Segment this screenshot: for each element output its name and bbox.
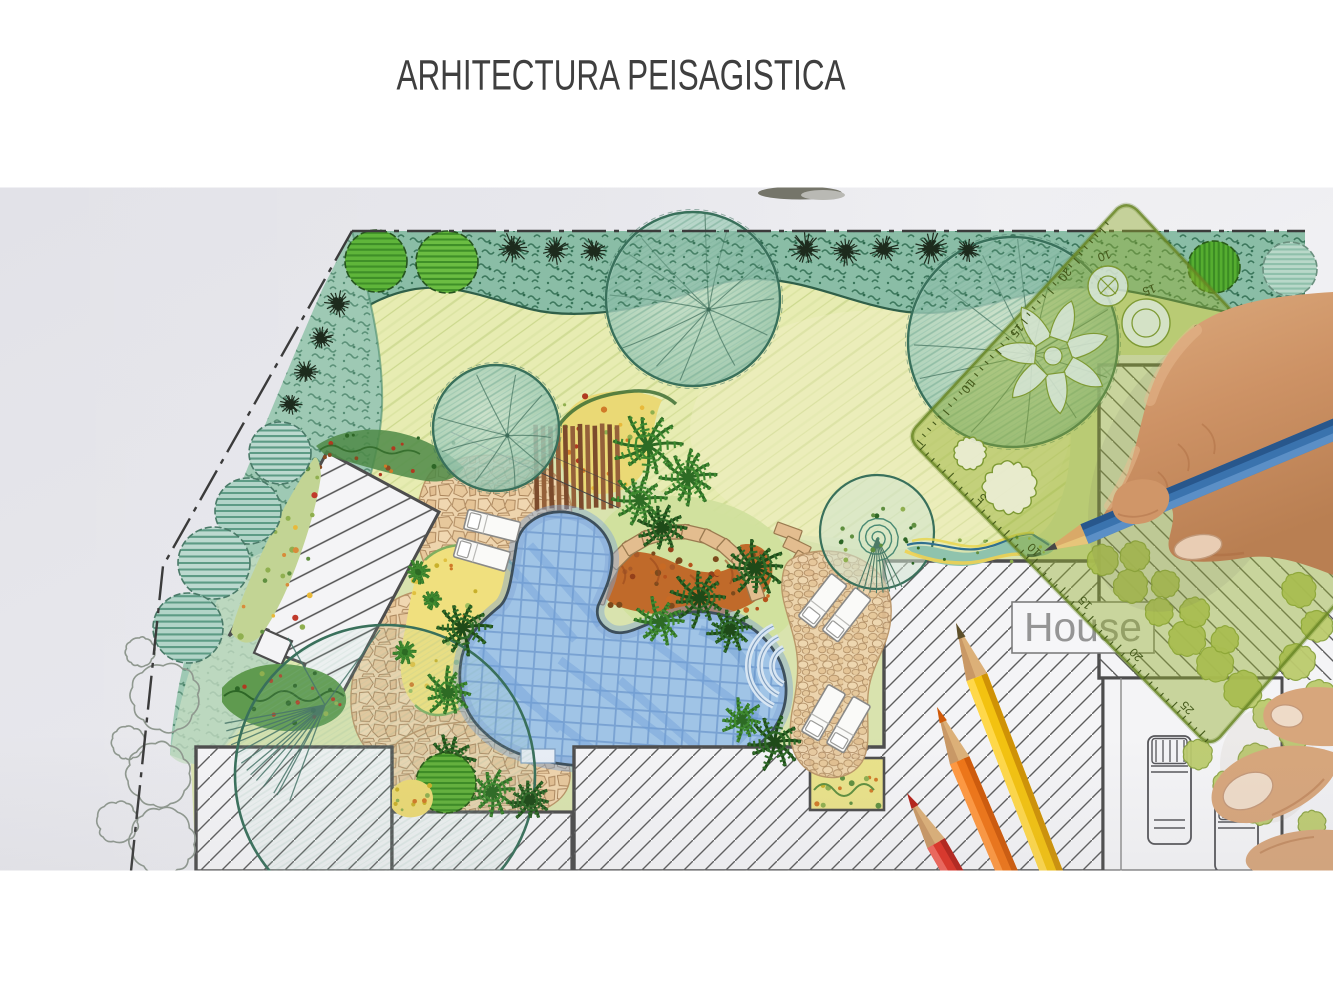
svg-text:ARHITECTURA PEISAGISTICA: ARHITECTURA PEISAGISTICA	[397, 52, 846, 100]
